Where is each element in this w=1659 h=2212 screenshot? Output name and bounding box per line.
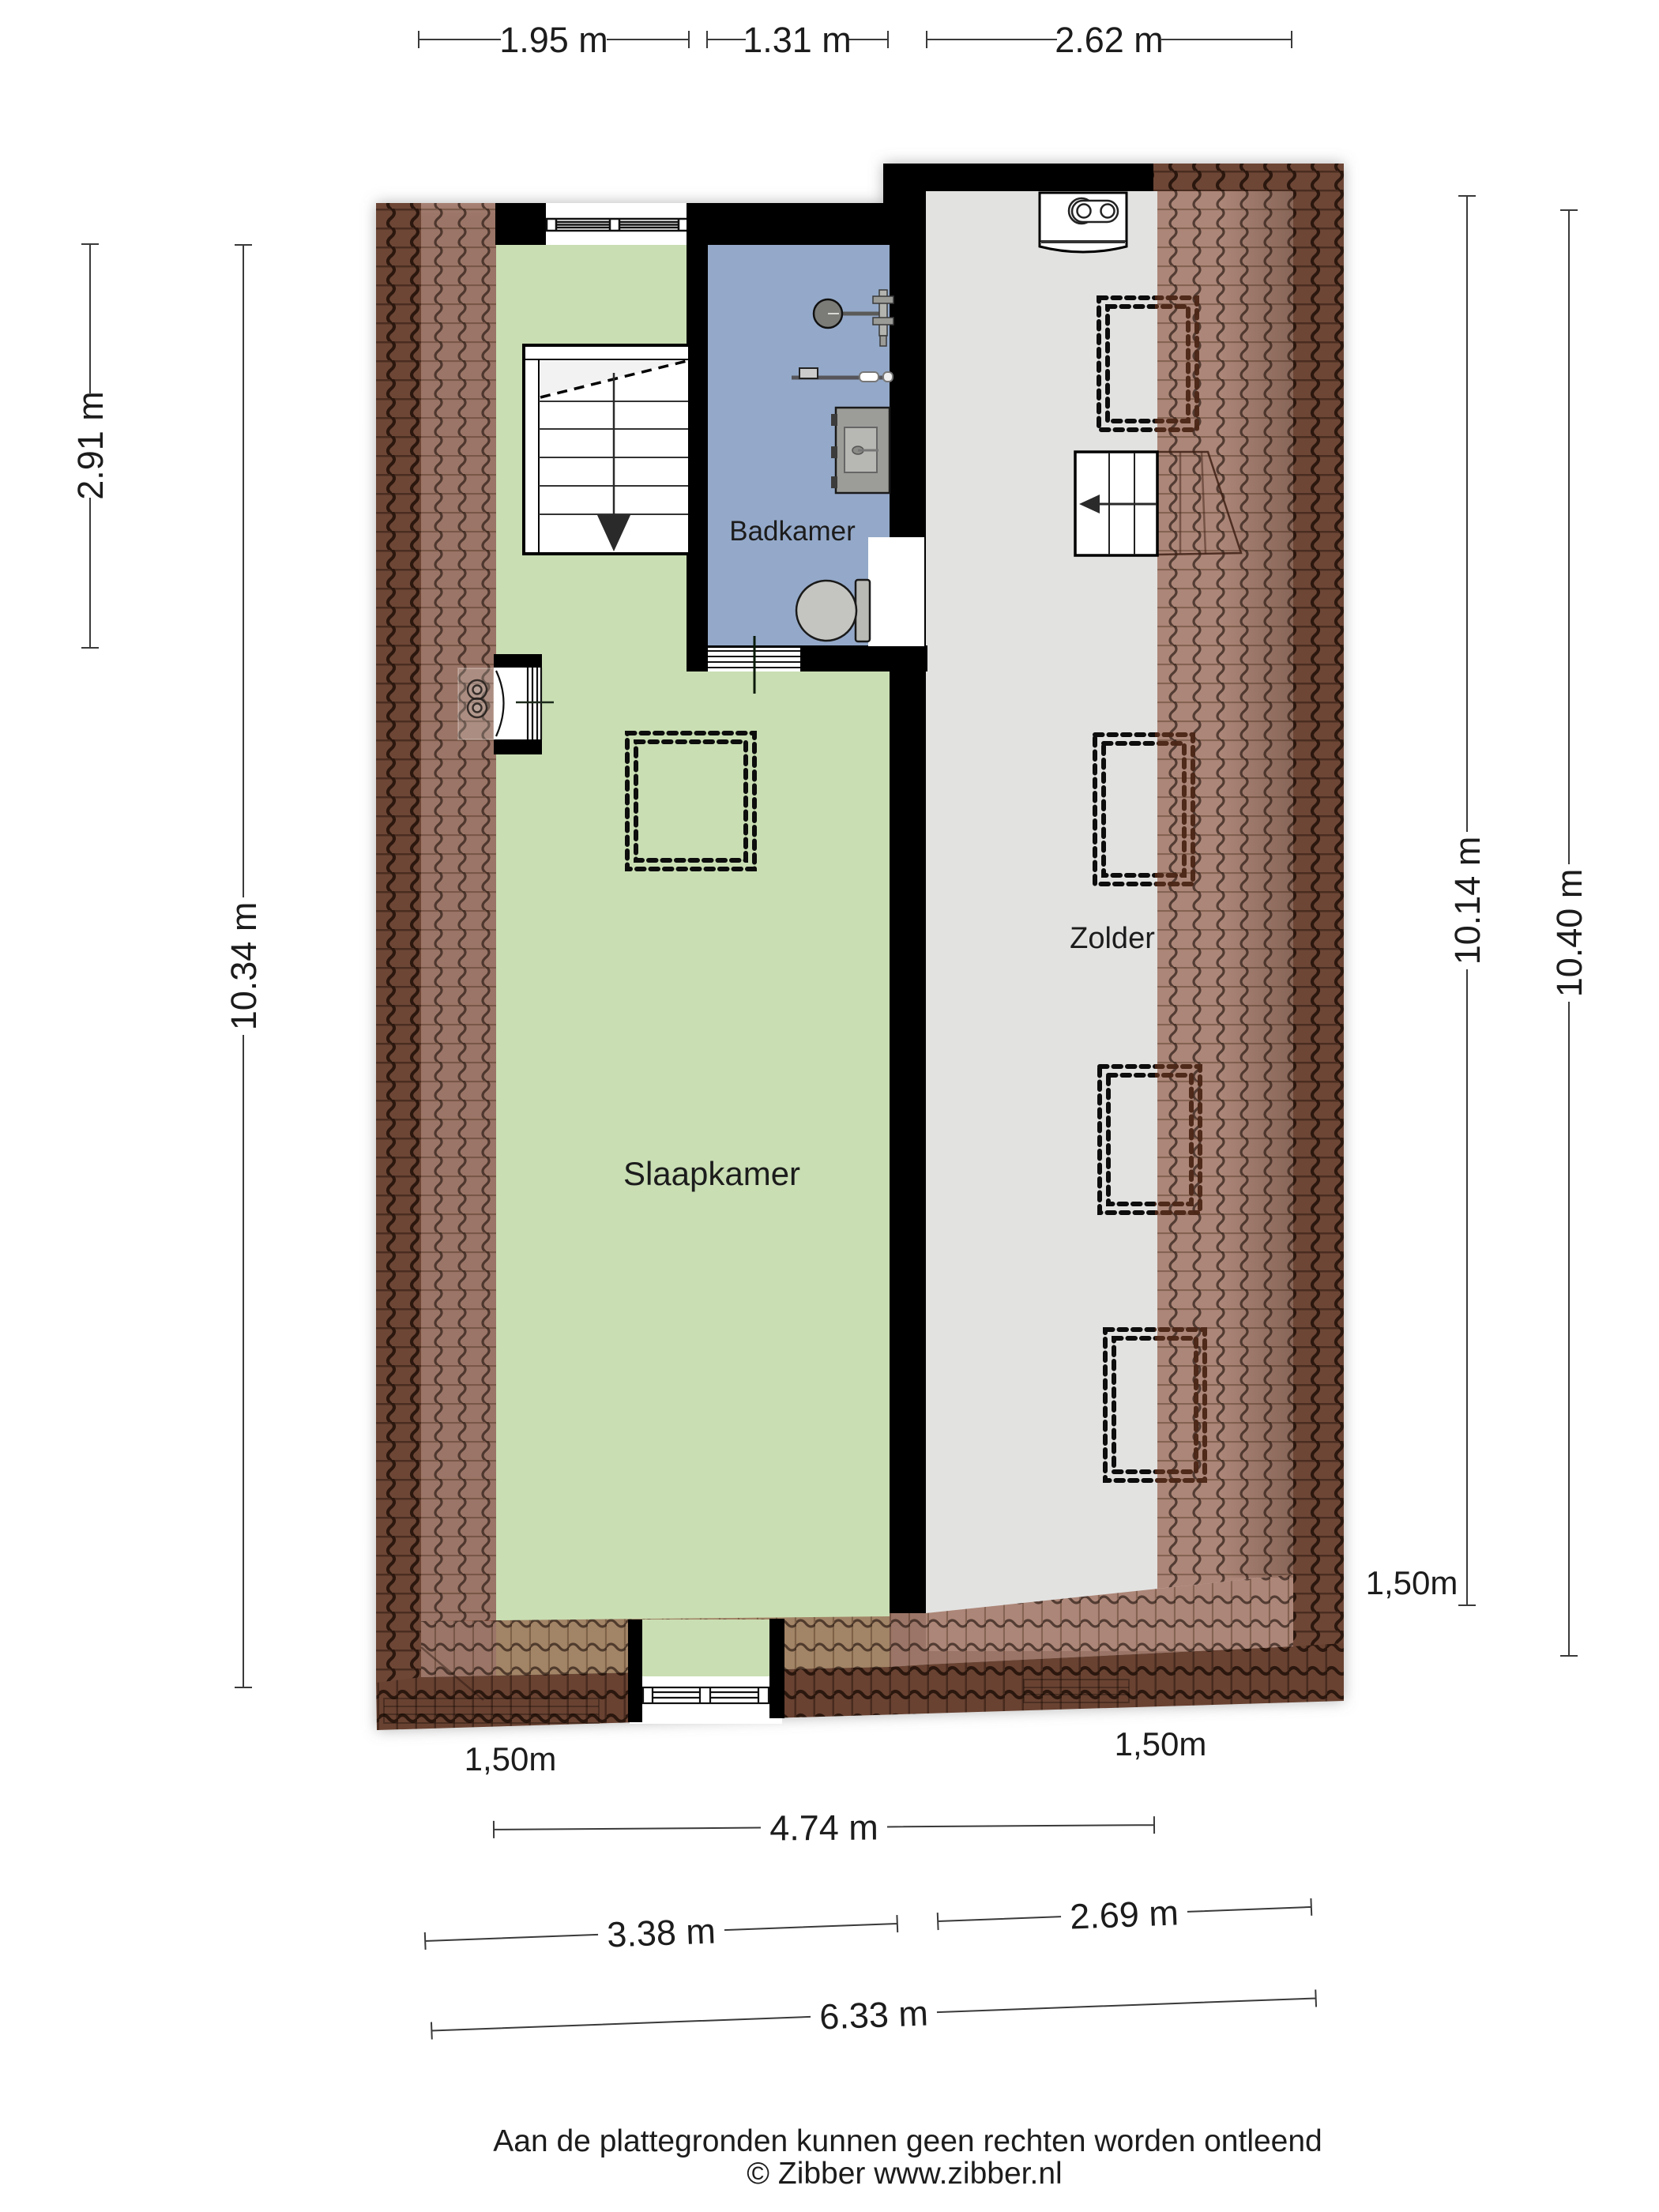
svg-text:1,50m: 1,50m — [1366, 1564, 1458, 1601]
svg-text:1,50m: 1,50m — [1115, 1725, 1207, 1762]
svg-text:Zolder: Zolder — [1070, 922, 1155, 955]
svg-text:1.31 m: 1.31 m — [743, 20, 852, 60]
svg-text:Aan de plattegronden kunnen ge: Aan de plattegronden kunnen geen rechten… — [493, 2124, 1322, 2158]
svg-text:1.95 m: 1.95 m — [499, 20, 608, 60]
svg-text:10.34 m: 10.34 m — [224, 902, 264, 1031]
svg-text:2.62 m: 2.62 m — [1055, 20, 1164, 60]
svg-text:Badkamer: Badkamer — [729, 516, 856, 547]
svg-text:6.33 m: 6.33 m — [818, 1992, 928, 2037]
svg-text:10.40 m: 10.40 m — [1549, 869, 1589, 998]
svg-text:© Zibber www.zibber.nl: © Zibber www.zibber.nl — [747, 2157, 1062, 2191]
svg-text:2.91 m: 2.91 m — [70, 391, 111, 500]
svg-text:10.14 m: 10.14 m — [1447, 837, 1488, 965]
svg-text:3.38 m: 3.38 m — [606, 1910, 716, 1954]
svg-text:2.69 m: 2.69 m — [1069, 1892, 1179, 1936]
svg-text:1,50m: 1,50m — [465, 1740, 557, 1777]
svg-text:Slaapkamer: Slaapkamer — [623, 1155, 800, 1192]
svg-text:4.74 m: 4.74 m — [769, 1808, 878, 1849]
